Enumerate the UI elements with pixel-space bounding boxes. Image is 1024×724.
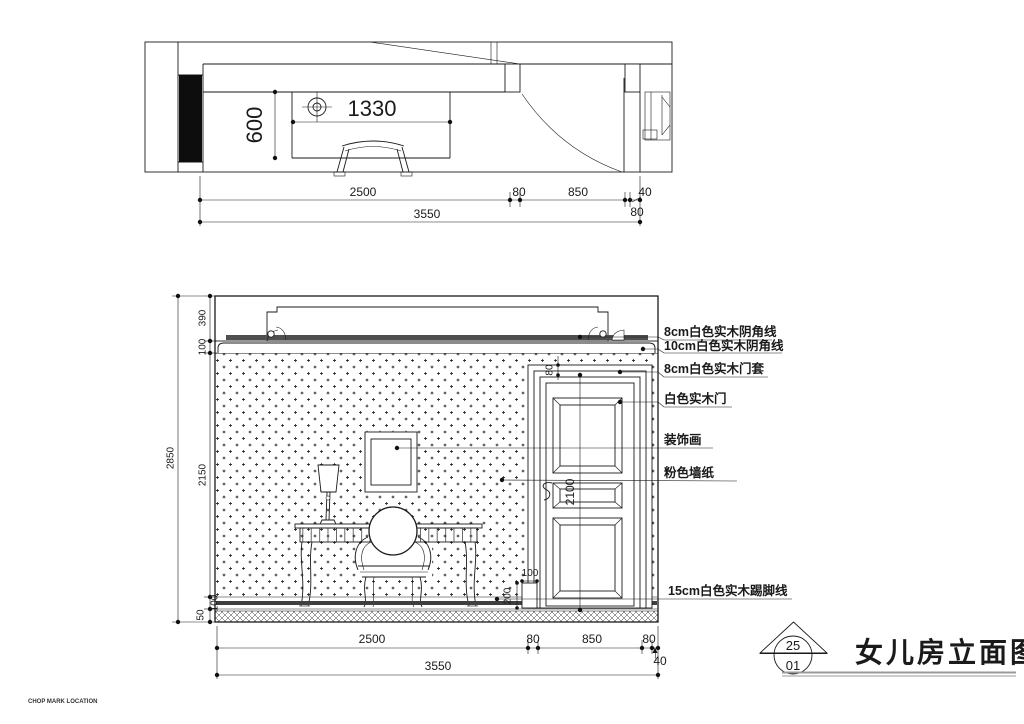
light-fixture-symbol: [302, 92, 332, 122]
label-skirting: 15cm白色实木踢脚线: [668, 583, 788, 598]
crown-moulding-8cm: [226, 335, 648, 340]
dim-plinth-height: 200: [503, 587, 514, 604]
plan-dim-total: 3550: [414, 207, 441, 221]
dim-600: 600: [242, 107, 267, 144]
plan-dim-80: 80: [512, 185, 526, 199]
floor-band: [215, 611, 658, 622]
plan-chair: [334, 141, 412, 176]
title-block: 25 01 女儿房立面图: [760, 622, 1024, 676]
elev-dim-850: 850: [582, 632, 602, 646]
elevation-bottom-dimensions: 2500 80 850 80 40 3550: [215, 626, 667, 679]
plan-door-swing: [522, 78, 624, 172]
dim-plinth-width: 100: [522, 568, 539, 579]
dim-2850: 2850: [166, 446, 177, 469]
decorative-painting: [365, 432, 417, 492]
plan-dim-80b: 80: [630, 205, 644, 219]
label-door: 白色实木门: [664, 391, 727, 406]
dim-390: 390: [198, 309, 209, 326]
dim-100a: 100: [198, 338, 209, 355]
plan-dim-2500: 2500: [350, 185, 377, 199]
elev-dim-2500: 2500: [359, 632, 386, 646]
elevation-left-dimensions: 390 100 2150 100 50 2850: [166, 294, 221, 624]
dim-door-height: 2100: [563, 478, 577, 505]
crown-moulding-10cm: [218, 343, 655, 353]
break-line: [370, 42, 520, 64]
white-wood-door: [522, 365, 652, 608]
label-painting: 装饰画: [663, 432, 702, 447]
elevation-view: 2100 80 100 200 8cm白色实木阴角线 10cm白色实木阴角线 8…: [166, 294, 792, 679]
plan-dim-850: 850: [568, 185, 588, 199]
door-jamb-right: [625, 64, 640, 92]
dim-1330: 1330: [348, 96, 397, 121]
drawing-title: 女儿房立面图: [855, 636, 1024, 668]
dim-100b: 100: [210, 594, 221, 611]
elev-dim-total: 3550: [425, 659, 452, 673]
label-crown-8cm: 8cm白色实木阴角线: [664, 324, 777, 339]
plan-cabinet-section: [643, 92, 670, 140]
label-crown-10cm: 10cm白色实木阴角线: [664, 338, 784, 353]
ceiling-cornice: [215, 296, 658, 354]
floor-plan: 1330 600 2500 80 850 40 80 3550: [145, 42, 672, 226]
drawing-index-bottom: 01: [786, 658, 800, 673]
label-door-casing: 8cm白色实木门套: [664, 361, 765, 376]
dim-50: 50: [196, 609, 207, 621]
door-jamb-left: [505, 64, 520, 92]
plan-dimensions: 1330 600: [242, 90, 452, 160]
stamp-note: CHOP MARK LOCATION: [28, 699, 97, 705]
door-plinth-block: [522, 583, 537, 608]
plan-dim-40: 40: [638, 185, 652, 199]
elev-dim-80a: 80: [526, 632, 540, 646]
drawing-index-top: 25: [786, 638, 800, 653]
label-wallpaper: 粉色墙纸: [664, 465, 715, 480]
drawing-sheet: 1330 600 2500 80 850 40 80 3550: [0, 0, 1024, 724]
plan-dimension-chain: 2500 80 850 40 80 3550: [198, 176, 652, 226]
plan-column: [178, 42, 203, 172]
dim-door-casing: 80: [545, 364, 556, 376]
elev-dim-80b: 80: [642, 632, 656, 646]
dim-2150: 2150: [198, 463, 209, 486]
